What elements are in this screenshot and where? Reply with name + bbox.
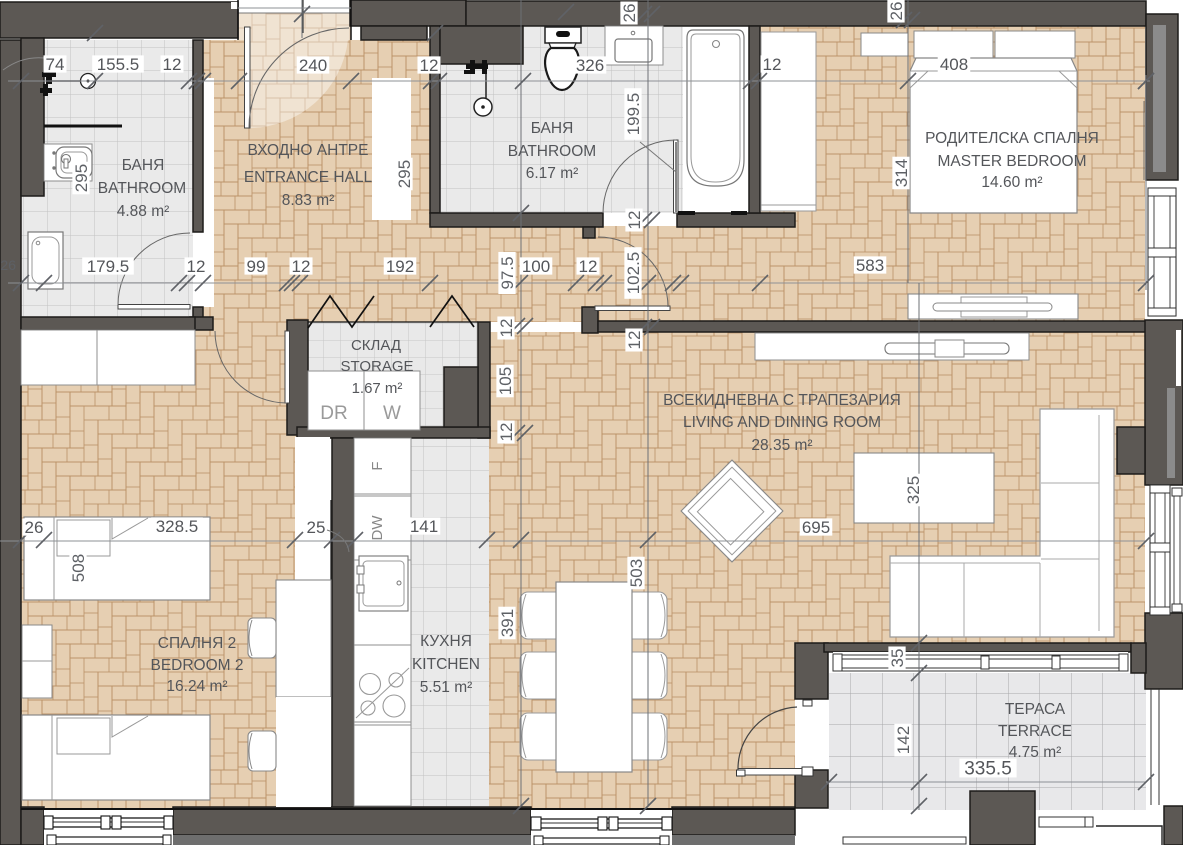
svg-text:695: 695 bbox=[802, 518, 830, 537]
svg-text:DW: DW bbox=[369, 515, 386, 541]
svg-text:99: 99 bbox=[247, 257, 266, 276]
svg-text:16.24 m²: 16.24 m² bbox=[166, 678, 227, 695]
svg-text:12: 12 bbox=[625, 331, 644, 350]
svg-text:12: 12 bbox=[579, 257, 598, 276]
svg-text:ВСЕКИДНЕВНА С ТРАПЕЗАРИЯ: ВСЕКИДНЕВНА С ТРАПЕЗАРИЯ bbox=[663, 392, 901, 409]
svg-text:335.5: 335.5 bbox=[964, 758, 1012, 779]
svg-text:25: 25 bbox=[307, 518, 326, 537]
svg-text:328.5: 328.5 bbox=[156, 517, 199, 536]
svg-text:142: 142 bbox=[894, 726, 913, 754]
svg-text:BEDROOM 2: BEDROOM 2 bbox=[150, 657, 243, 674]
svg-text:8.83 m²: 8.83 m² bbox=[282, 192, 335, 209]
svg-text:12: 12 bbox=[420, 56, 439, 75]
svg-text:155.5: 155.5 bbox=[97, 55, 140, 74]
svg-text:102.5: 102.5 bbox=[624, 252, 643, 295]
svg-text:LIVING AND DINING ROOM: LIVING AND DINING ROOM bbox=[683, 414, 881, 431]
svg-text:391: 391 bbox=[498, 609, 517, 637]
svg-text:4.88 m²: 4.88 m² bbox=[117, 203, 170, 220]
svg-text:295: 295 bbox=[72, 164, 91, 192]
svg-text:12: 12 bbox=[763, 55, 782, 74]
svg-text:DR: DR bbox=[320, 403, 347, 424]
svg-text:199.5: 199.5 bbox=[624, 93, 643, 136]
svg-text:ВХОДНО АНТРЕ: ВХОДНО АНТРЕ bbox=[248, 142, 369, 159]
svg-text:408: 408 bbox=[940, 55, 968, 74]
svg-text:12: 12 bbox=[497, 319, 516, 338]
svg-text:ENTRANCE HALL: ENTRANCE HALL bbox=[244, 169, 373, 186]
svg-text:503: 503 bbox=[627, 559, 646, 587]
svg-text:14.60 m²: 14.60 m² bbox=[981, 174, 1042, 191]
svg-text:КУХНЯ: КУХНЯ bbox=[420, 633, 472, 650]
svg-text:BATHROOM: BATHROOM bbox=[508, 143, 596, 160]
svg-text:74: 74 bbox=[46, 55, 65, 74]
svg-text:35: 35 bbox=[888, 649, 907, 668]
svg-text:БАНЯ: БАНЯ bbox=[122, 157, 165, 174]
svg-text:MASTER BEDROOM: MASTER BEDROOM bbox=[938, 153, 1087, 170]
svg-text:240: 240 bbox=[299, 56, 327, 75]
svg-text:12: 12 bbox=[625, 211, 644, 230]
svg-text:1.67 m²: 1.67 m² bbox=[352, 380, 403, 397]
svg-text:105: 105 bbox=[496, 367, 515, 395]
svg-text:STORAGE: STORAGE bbox=[340, 358, 413, 375]
svg-text:26: 26 bbox=[25, 518, 44, 537]
svg-text:192: 192 bbox=[386, 257, 414, 276]
svg-text:СПАЛНЯ 2: СПАЛНЯ 2 bbox=[158, 635, 237, 652]
svg-text:141: 141 bbox=[410, 517, 438, 536]
svg-text:100: 100 bbox=[522, 257, 550, 276]
svg-text:СКЛАД: СКЛАД bbox=[351, 337, 401, 354]
svg-text:12: 12 bbox=[163, 55, 182, 74]
svg-text:ТЕРАСА: ТЕРАСА bbox=[1005, 701, 1066, 718]
svg-text:12: 12 bbox=[292, 257, 311, 276]
svg-text:28.35 m²: 28.35 m² bbox=[751, 437, 812, 454]
svg-text:6.17 m²: 6.17 m² bbox=[526, 165, 579, 182]
svg-text:12: 12 bbox=[187, 257, 206, 276]
svg-text:4.75 m²: 4.75 m² bbox=[1009, 744, 1062, 761]
svg-text:БАНЯ: БАНЯ bbox=[531, 120, 574, 137]
svg-text:26: 26 bbox=[620, 4, 639, 23]
svg-text:TERRACE: TERRACE bbox=[998, 723, 1072, 740]
svg-text:F: F bbox=[369, 461, 386, 470]
svg-text:12: 12 bbox=[497, 423, 516, 442]
svg-text:583: 583 bbox=[856, 256, 884, 275]
svg-text:BATHROOM: BATHROOM bbox=[98, 180, 186, 197]
svg-text:325: 325 bbox=[904, 476, 923, 504]
svg-text:326: 326 bbox=[576, 56, 604, 75]
svg-text:26: 26 bbox=[887, 2, 906, 21]
svg-text:W: W bbox=[383, 403, 401, 424]
svg-text:508: 508 bbox=[69, 554, 88, 582]
svg-text:97.5: 97.5 bbox=[498, 256, 517, 289]
svg-text:РОДИТЕЛСКА СПАЛНЯ: РОДИТЕЛСКА СПАЛНЯ bbox=[925, 130, 1099, 147]
svg-text:179.5: 179.5 bbox=[87, 257, 130, 276]
svg-text:KITCHEN: KITCHEN bbox=[412, 656, 480, 673]
svg-text:5.51 m²: 5.51 m² bbox=[420, 679, 473, 696]
svg-text:26: 26 bbox=[0, 257, 16, 273]
svg-text:314: 314 bbox=[892, 159, 911, 187]
svg-text:295: 295 bbox=[395, 160, 414, 188]
